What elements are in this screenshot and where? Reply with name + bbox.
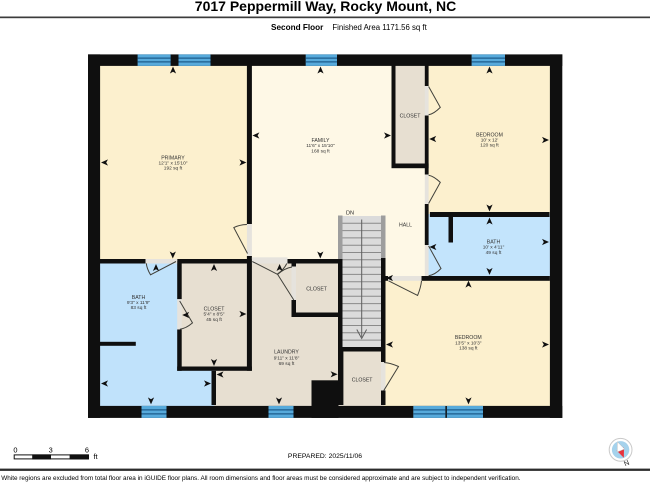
svg-text:DN: DN — [346, 210, 354, 216]
svg-text:45 sq ft: 45 sq ft — [206, 317, 222, 323]
svg-text:PREPARED: 2025/11/06: PREPARED: 2025/11/06 — [288, 453, 362, 460]
svg-text:9'11" x 11'8": 9'11" x 11'8" — [274, 355, 300, 361]
svg-text:5'4" x 8'5": 5'4" x 8'5" — [204, 312, 225, 318]
svg-text:PRIMARY: PRIMARY — [161, 155, 185, 161]
svg-text:BATH: BATH — [487, 239, 501, 245]
svg-text:11'6" x 15'10": 11'6" x 15'10" — [306, 143, 335, 149]
svg-text:FAMILY: FAMILY — [311, 138, 330, 144]
svg-text:69 sq ft: 69 sq ft — [279, 361, 295, 367]
svg-text:BEDROOM: BEDROOM — [455, 335, 482, 341]
svg-text:CLOSET: CLOSET — [204, 306, 226, 312]
svg-text:0: 0 — [13, 445, 17, 454]
svg-text:LAUNDRY: LAUNDRY — [274, 350, 299, 356]
svg-text:6: 6 — [85, 445, 89, 454]
svg-text:BEDROOM: BEDROOM — [476, 132, 503, 138]
svg-text:10' x 12': 10' x 12' — [481, 138, 499, 144]
svg-text:HALL: HALL — [399, 223, 412, 229]
svg-text:ft: ft — [94, 452, 98, 461]
svg-text:Second Floor: Second Floor — [271, 23, 324, 32]
svg-text:138 sq ft: 138 sq ft — [459, 346, 478, 352]
svg-text:49 sq ft: 49 sq ft — [486, 250, 502, 256]
svg-text:192 sq ft: 192 sq ft — [164, 166, 183, 172]
svg-text:Finished Area 1171.56 sq ft: Finished Area 1171.56 sq ft — [332, 23, 427, 32]
svg-text:3: 3 — [49, 445, 53, 454]
svg-text:12'1" x 15'10": 12'1" x 15'10" — [159, 160, 188, 166]
svg-text:120 sq ft: 120 sq ft — [480, 143, 499, 149]
svg-text:CLOSET: CLOSET — [352, 377, 374, 383]
svg-text:CLOSET: CLOSET — [400, 114, 422, 120]
svg-text:BATH: BATH — [132, 295, 146, 301]
svg-text:White regions are excluded fro: White regions are excluded from total fl… — [1, 475, 521, 482]
svg-text:168 sq ft: 168 sq ft — [311, 148, 330, 154]
svg-text:13'5" x 10'3": 13'5" x 10'3" — [455, 340, 482, 346]
svg-text:10' x 4'11": 10' x 4'11" — [483, 245, 505, 251]
svg-text:7017 Peppermill Way, Rocky Mou: 7017 Peppermill Way, Rocky Mount, NC — [195, 0, 456, 14]
svg-text:83 sq ft: 83 sq ft — [131, 305, 147, 311]
svg-text:9'3" x 11'9": 9'3" x 11'9" — [127, 300, 151, 306]
svg-text:CLOSET: CLOSET — [306, 287, 328, 293]
